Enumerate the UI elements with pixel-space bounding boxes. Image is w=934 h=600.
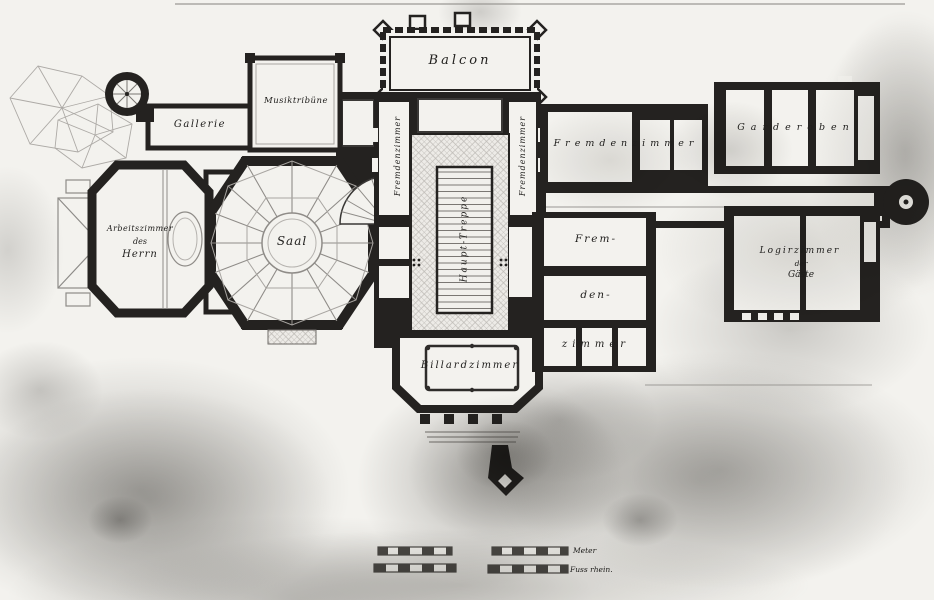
floor-plan-drawing xyxy=(0,0,934,600)
scale-bar-label-meter: Meter xyxy=(573,547,613,555)
saal-octagon xyxy=(207,157,377,344)
room-label-haupt-treppe: Haupt-Treppe xyxy=(461,184,470,294)
scale-bar-label-fuss: Fuss rhein. xyxy=(570,566,626,574)
room-label-fremdenzimmer-top: Fremdenzimmer xyxy=(548,139,704,149)
room-label-logirzimmer-line3: Gäste xyxy=(776,271,826,280)
room-label-garderoben: Garderoben xyxy=(726,123,866,133)
room-label-musiktribuene: Musiktribüne xyxy=(252,97,340,106)
porch-and-path xyxy=(420,414,524,496)
room-label-balcon: Balcon xyxy=(392,54,528,67)
stair-tower-west xyxy=(105,72,154,122)
room-label-gallerie: Gallerie xyxy=(158,120,242,130)
room-label-saal: Saal xyxy=(264,235,320,247)
room-label-arbeitszimmer-line3: Herrn xyxy=(105,250,175,260)
room-label-fremdenzimmer-stack-line1: Frem- xyxy=(546,234,646,245)
room-label-fremdenzimmer-vertical-right: Fremdenzimmer xyxy=(519,102,527,210)
room-label-arbeitszimmer-line2: des xyxy=(110,238,170,246)
scale-bars xyxy=(374,547,568,573)
room-label-fremdenzimmer-vertical-left: Fremdenzimmer xyxy=(394,102,402,210)
room-label-fremdenzimmer-stack-line3: zimmer xyxy=(544,340,648,350)
room-label-logirzimmer-line2: der xyxy=(786,260,816,268)
billiard-bay xyxy=(392,330,543,413)
room-label-arbeitszimmer-line1: Arbeitszimmer xyxy=(98,225,182,233)
room-label-billardzimmer: Billardzimmer xyxy=(402,361,538,371)
room-label-fremdenzimmer-stack-line2: den- xyxy=(546,290,646,301)
photo-of-floor-plan: Balcon Musiktribüne Gallerie Arbeitszimm… xyxy=(0,0,934,600)
room-label-logirzimmer-line1: Logirzimmer xyxy=(738,247,862,256)
